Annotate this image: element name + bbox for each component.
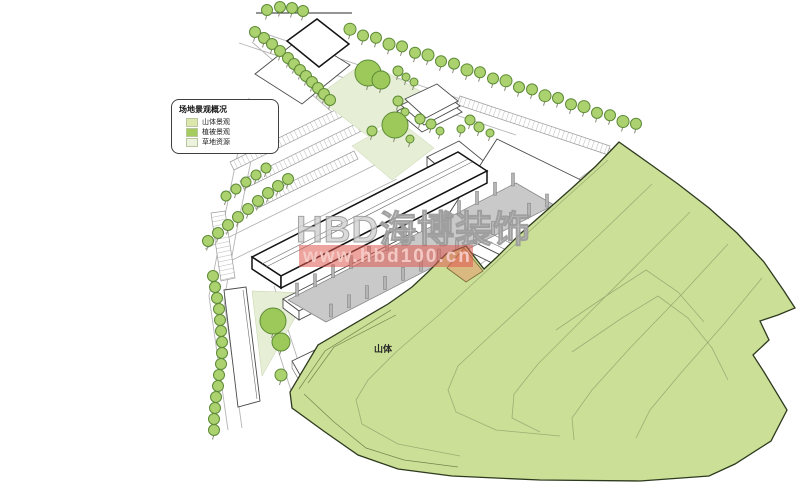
legend-item: 植被景观 — [186, 128, 272, 137]
pilotis-column — [296, 283, 299, 296]
tree-icon — [449, 58, 460, 69]
tree-icon — [372, 71, 390, 89]
tree-icon — [605, 110, 616, 121]
tree-icon — [210, 403, 221, 414]
tree-icon — [566, 99, 577, 110]
tree-icon — [410, 78, 418, 86]
tree-icon — [213, 381, 224, 392]
tree-icon — [500, 75, 512, 87]
legend-swatch-mountain — [186, 118, 198, 127]
pilotis-column — [314, 274, 317, 287]
tree-icon — [287, 3, 298, 14]
tree-icon — [410, 47, 421, 58]
tree-icon — [283, 174, 294, 185]
tree-icon — [210, 282, 221, 293]
tree-icon — [212, 293, 223, 304]
legend-item: 山体景观 — [186, 118, 272, 127]
tree-icon — [263, 188, 274, 199]
tree-icon — [631, 118, 642, 129]
tree-icon — [514, 82, 525, 93]
legend-item: 草地资源 — [186, 138, 272, 147]
tree-icon — [486, 129, 494, 137]
tree-icon — [488, 73, 499, 84]
tree-icon — [325, 95, 336, 106]
tree-icon — [393, 66, 403, 76]
pilotis-column — [476, 191, 479, 204]
tree-icon — [465, 115, 475, 125]
tree-icon — [272, 333, 290, 351]
legend-swatch-grass — [186, 138, 198, 147]
tree-icon — [358, 30, 369, 41]
tree-icon — [241, 177, 251, 187]
tree-icon — [216, 326, 227, 337]
pilotis-column — [366, 286, 369, 299]
pilotis-column — [402, 267, 405, 280]
tree-icon — [617, 116, 629, 128]
tree-icon — [273, 181, 284, 192]
mountain-label: 山体 — [374, 343, 393, 354]
tree-icon — [539, 90, 551, 102]
tree-icon — [233, 212, 244, 223]
tree-icon — [260, 308, 286, 334]
legend-item-label: 植被景观 — [202, 128, 230, 137]
tree-icon — [251, 170, 261, 180]
tree-icon — [209, 414, 220, 425]
tree-icon — [203, 236, 214, 247]
site-plan-drawing: 山体 HBD海博装饰 www.hbd100.cn — [0, 0, 800, 488]
tree-icon — [275, 2, 286, 13]
tree-icon — [402, 73, 410, 81]
legend: 场地景观概况 山体景观 植被景观 草地资源 — [171, 99, 279, 154]
watermark-url-text: www.hbd100.cn — [302, 246, 472, 267]
tree-icon — [592, 107, 603, 118]
tree-icon — [578, 101, 590, 113]
tree-icon — [393, 96, 403, 106]
tree-icon — [215, 315, 226, 326]
tree-icon — [422, 49, 434, 61]
tree-icon — [221, 191, 231, 201]
tree-icon — [262, 5, 273, 16]
tree-icon — [367, 126, 377, 136]
legend-item-label: 山体景观 — [202, 118, 230, 127]
pilotis-column — [546, 194, 549, 207]
tree-icon — [253, 196, 264, 207]
tree-icon — [383, 38, 395, 50]
tree-icon — [406, 135, 414, 143]
parking-strip — [252, 151, 358, 209]
tree-icon — [216, 359, 227, 370]
tree-icon — [415, 114, 425, 124]
tree-icon — [298, 6, 309, 17]
tree-icon — [553, 93, 564, 104]
tree-icon — [397, 41, 408, 52]
pilotis-column — [512, 173, 515, 186]
tree-icon — [211, 392, 222, 403]
tree-icon — [223, 220, 234, 231]
tree-icon — [217, 337, 228, 348]
legend-title: 场地景观概况 — [179, 104, 272, 115]
tree-icon — [527, 84, 538, 95]
tree-icon — [231, 184, 241, 194]
legend-swatch-vegetation — [186, 128, 198, 137]
tree-icon — [457, 125, 465, 133]
legend-item-label: 草地资源 — [202, 138, 230, 147]
tree-icon — [214, 370, 225, 381]
watermark-brand-text: HBD海博装饰 — [296, 209, 531, 250]
tree-icon — [461, 64, 473, 76]
pilotis-column — [330, 304, 333, 317]
tree-icon — [475, 67, 486, 78]
pilotis-column — [348, 295, 351, 308]
tree-icon — [208, 271, 219, 282]
tree-icon — [436, 56, 447, 67]
pilotis-column — [384, 277, 387, 290]
tree-icon — [213, 228, 224, 239]
tree-icon — [426, 119, 436, 129]
tree-icon — [261, 163, 271, 173]
tree-icon — [382, 112, 408, 138]
pilotis-column — [494, 182, 497, 195]
tree-icon — [474, 122, 484, 132]
tree-icon — [214, 304, 225, 315]
tree-icon — [243, 204, 254, 215]
tree-icon — [371, 32, 382, 43]
site-plan-page: 山体 HBD海博装饰 www.hbd100.cn 场地景观概况 山体景观 植被景… — [0, 0, 800, 488]
tree-icon — [436, 127, 444, 135]
tree-icon — [217, 348, 228, 359]
tree-icon — [344, 23, 356, 35]
tree-icon — [275, 369, 287, 381]
tree-icon — [209, 425, 220, 436]
